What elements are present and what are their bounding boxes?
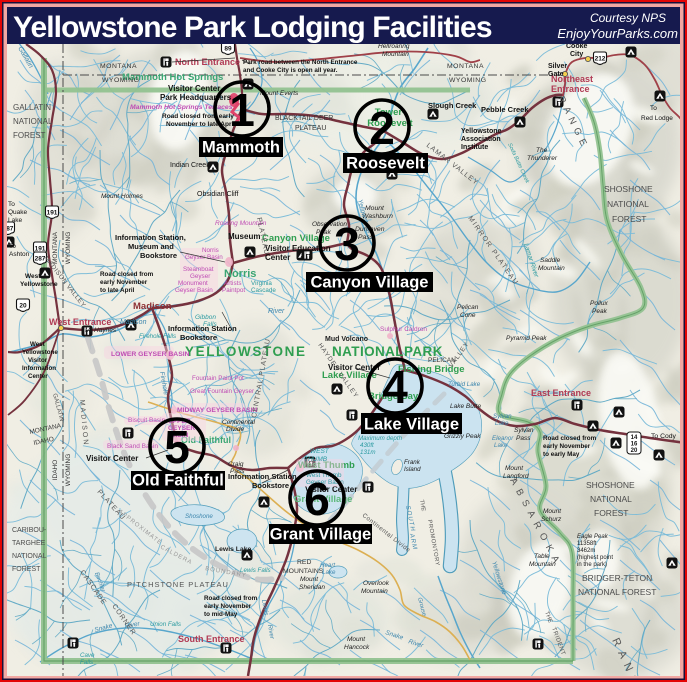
svg-text:Information Station,: Information Station,: [115, 233, 186, 242]
svg-text:Mountain: Mountain: [361, 588, 388, 595]
svg-text:Continental: Continental: [222, 419, 255, 426]
svg-text:Geyser Basin: Geyser Basin: [175, 287, 213, 294]
svg-text:WEST: WEST: [310, 448, 330, 455]
svg-text:WYOMING: WYOMING: [102, 77, 139, 84]
svg-text:East Entrance: East Entrance: [531, 388, 591, 398]
svg-text:To: To: [9, 243, 16, 250]
svg-text:to early May: to early May: [543, 451, 580, 458]
svg-text:Visitor Center: Visitor Center: [86, 454, 138, 463]
svg-text:20: 20: [631, 448, 638, 454]
svg-text:Center: Center: [28, 373, 48, 380]
svg-text:Hancock: Hancock: [344, 644, 370, 651]
svg-text:City: City: [570, 51, 583, 58]
svg-text:Sylvan: Sylvan: [514, 427, 534, 434]
svg-text:Lake Butte: Lake Butte: [450, 403, 481, 410]
svg-text:Thunderer: Thunderer: [527, 155, 558, 162]
svg-text:MONTANA: MONTANA: [52, 231, 59, 264]
svg-text:WYOMING: WYOMING: [65, 454, 72, 487]
svg-text:212: 212: [595, 55, 606, 62]
svg-text:Norris: Norris: [202, 247, 219, 254]
svg-text:Saddle: Saddle: [540, 257, 561, 264]
svg-text:Madison: Madison: [133, 301, 172, 312]
svg-text:Cave: Cave: [80, 652, 95, 659]
svg-text:to mid-May: to mid-May: [204, 611, 238, 618]
svg-text:IDAHO: IDAHO: [52, 460, 59, 481]
svg-text:5: 5: [164, 421, 190, 473]
svg-text:Mt Haynes: Mt Haynes: [85, 327, 117, 334]
svg-text:Road closed from: Road closed from: [543, 435, 597, 442]
svg-text:Sheridan: Sheridan: [299, 584, 325, 591]
svg-text:To: To: [8, 201, 15, 208]
svg-text:PLATEAU: PLATEAU: [295, 125, 326, 132]
svg-text:Pebble Creek: Pebble Creek: [481, 105, 529, 114]
svg-text:TARGHEE: TARGHEE: [12, 540, 46, 547]
svg-text:Museum and: Museum and: [128, 242, 174, 251]
svg-text:early November: early November: [100, 279, 148, 286]
svg-text:3462m: 3462m: [577, 548, 595, 554]
svg-text:West: West: [25, 273, 41, 280]
svg-text:early November: early November: [543, 443, 591, 450]
svg-text:Shoshone: Shoshone: [185, 513, 213, 520]
svg-text:NATIONAL: NATIONAL: [12, 553, 47, 560]
svg-text:Madison: Madison: [120, 319, 147, 326]
svg-text:MOUNTAINS: MOUNTAINS: [283, 568, 324, 575]
svg-text:Mud Volcano: Mud Volcano: [325, 336, 368, 343]
svg-text:Lake: Lake: [8, 217, 22, 224]
svg-text:Grizzly Peak: Grizzly Peak: [444, 433, 481, 440]
svg-text:430ft: 430ft: [360, 442, 374, 449]
svg-text:(highest point: (highest point: [577, 555, 613, 561]
svg-text:NATIONAL: NATIONAL: [13, 117, 53, 126]
svg-text:Divide: Divide: [226, 426, 244, 433]
svg-text:FOREST: FOREST: [594, 508, 628, 518]
svg-text:Gibbon: Gibbon: [195, 314, 216, 321]
svg-text:Frank: Frank: [404, 459, 421, 466]
svg-text:Falls: Falls: [80, 659, 93, 666]
svg-text:Monument: Monument: [178, 280, 208, 287]
svg-text:Grant Village: Grant Village: [270, 526, 371, 544]
svg-text:1: 1: [229, 84, 255, 136]
svg-text:191: 191: [35, 245, 46, 252]
svg-text:4: 4: [382, 361, 408, 413]
svg-text:South Entrance: South Entrance: [178, 634, 245, 644]
svg-text:THUMB: THUMB: [304, 456, 328, 463]
svg-text:Obsidian Cliff: Obsidian Cliff: [197, 191, 239, 198]
svg-text:BLACKTAIL DEER: BLACKTAIL DEER: [275, 115, 333, 122]
svg-text:Virginia: Virginia: [251, 280, 272, 287]
svg-text:Information: Information: [22, 365, 56, 372]
svg-text:3: 3: [334, 218, 360, 270]
svg-text:Museum: Museum: [228, 232, 260, 241]
svg-text:Mammoth: Mammoth: [202, 139, 280, 157]
svg-text:WYOMING: WYOMING: [65, 232, 72, 265]
svg-text:Peak: Peak: [592, 308, 608, 315]
svg-text:Yellowstone: Yellowstone: [461, 128, 502, 135]
svg-text:Mount: Mount: [300, 576, 319, 583]
svg-text:Yellowstone: Yellowstone: [20, 281, 58, 288]
svg-text:GALLATIN: GALLATIN: [13, 103, 51, 112]
svg-text:Road closed from: Road closed from: [100, 271, 154, 278]
svg-text:MONTANA: MONTANA: [447, 63, 484, 70]
svg-text:Mountain: Mountain: [538, 265, 565, 272]
svg-text:PITCHSTONE PLATEAU: PITCHSTONE PLATEAU: [127, 580, 229, 589]
svg-text:Firehole Falls: Firehole Falls: [139, 333, 176, 340]
svg-text:Courtesy NPS: Courtesy NPS: [590, 11, 666, 25]
svg-text:Lake: Lake: [322, 569, 336, 576]
svg-text:West: West: [30, 341, 45, 348]
svg-text:Cascade: Cascade: [251, 287, 276, 294]
svg-text:early November: early November: [204, 603, 252, 610]
svg-text:MIDWAY GEYSER BASIN: MIDWAY GEYSER BASIN: [177, 407, 258, 414]
svg-text:Institute: Institute: [461, 144, 488, 151]
svg-text:To: To: [650, 105, 657, 112]
svg-text:Pyramid Peak: Pyramid Peak: [506, 335, 547, 342]
svg-text:Entrance: Entrance: [551, 84, 590, 94]
svg-text:BRIDGER-TETON: BRIDGER-TETON: [582, 573, 652, 583]
svg-text:Sulphur Caldron: Sulphur Caldron: [380, 326, 427, 333]
svg-text:Mount: Mount: [543, 508, 562, 515]
svg-text:Canyon Village: Canyon Village: [311, 274, 429, 292]
svg-text:Visitor Center: Visitor Center: [168, 84, 220, 93]
svg-text:Mount Holmes: Mount Holmes: [101, 193, 144, 200]
svg-text:West Entrance: West Entrance: [49, 317, 111, 327]
svg-text:Indian Creek: Indian Creek: [170, 162, 210, 169]
svg-text:Mount: Mount: [505, 465, 524, 472]
svg-text:Pelican: Pelican: [457, 304, 479, 311]
svg-text:Lake: Lake: [495, 420, 509, 427]
svg-text:Craig: Craig: [228, 461, 244, 468]
svg-text:16: 16: [631, 442, 638, 448]
svg-text:Hellroaring: Hellroaring: [378, 43, 410, 50]
svg-text:Ashton: Ashton: [9, 251, 30, 258]
svg-text:EnjoyYourParks.com: EnjoyYourParks.com: [557, 26, 678, 41]
svg-text:Steamboat: Steamboat: [183, 266, 214, 273]
svg-text:Pass: Pass: [230, 468, 245, 475]
svg-text:Island: Island: [404, 466, 421, 473]
svg-text:FOREST: FOREST: [13, 131, 46, 140]
svg-text:6: 6: [304, 473, 330, 525]
svg-text:NATIONAL: NATIONAL: [332, 344, 404, 359]
svg-text:RED: RED: [297, 559, 311, 566]
svg-text:Artists: Artists: [224, 280, 242, 287]
svg-text:Eleanor: Eleanor: [492, 435, 514, 442]
svg-text:WYOMING: WYOMING: [449, 77, 486, 84]
svg-text:14: 14: [631, 435, 638, 441]
svg-text:Maximum depth: Maximum depth: [358, 435, 403, 442]
svg-text:Mountain: Mountain: [382, 51, 409, 58]
svg-text:Lewis Lake: Lewis Lake: [215, 546, 251, 553]
svg-text:89: 89: [224, 45, 232, 52]
svg-text:Turbid Lake: Turbid Lake: [448, 381, 481, 388]
svg-text:Bookstore: Bookstore: [140, 251, 177, 260]
svg-text:Cone: Cone: [460, 312, 476, 319]
svg-text:in the park): in the park): [577, 562, 607, 568]
svg-text:Bookstore: Bookstore: [252, 481, 289, 490]
svg-text:Geyser: Geyser: [190, 273, 210, 280]
svg-text:Slough Creek: Slough Creek: [428, 101, 477, 110]
svg-text:SHOSHONE: SHOSHONE: [604, 184, 653, 194]
svg-text:Silver: Silver: [548, 63, 567, 70]
svg-text:Gate: Gate: [548, 71, 564, 78]
svg-text:11358ft: 11358ft: [577, 541, 597, 547]
svg-text:NATIONAL FOREST: NATIONAL FOREST: [578, 587, 656, 597]
svg-text:Association: Association: [461, 136, 501, 143]
svg-text:Eagle Peak: Eagle Peak: [577, 534, 609, 540]
svg-text:Mount: Mount: [347, 636, 366, 643]
svg-text:Yellowstone Park Lodging Facil: Yellowstone Park Lodging Facilities: [13, 11, 492, 44]
svg-text:Yellowstone: Yellowstone: [22, 349, 58, 356]
svg-text:CARIBOU-: CARIBOU-: [12, 527, 47, 534]
svg-text:NATIONAL: NATIONAL: [590, 494, 632, 504]
svg-text:The: The: [536, 147, 548, 154]
svg-text:River: River: [268, 308, 285, 315]
svg-text:LOWER GEYSER BASIN: LOWER GEYSER BASIN: [111, 351, 190, 358]
svg-text:To Cody: To Cody: [651, 433, 677, 440]
svg-text:Old Faithful: Old Faithful: [132, 472, 224, 490]
svg-text:Overlook: Overlook: [363, 580, 390, 587]
svg-text:Sylvan: Sylvan: [493, 413, 512, 420]
svg-text:MONTANA: MONTANA: [100, 63, 137, 70]
svg-text:Quake: Quake: [8, 209, 28, 216]
svg-text:Great Fountain Geyser: Great Fountain Geyser: [190, 388, 254, 395]
svg-text:Heart: Heart: [320, 562, 335, 569]
svg-text:Pass: Pass: [516, 435, 531, 442]
svg-text:NATIONAL: NATIONAL: [607, 199, 649, 209]
svg-text:191: 191: [47, 209, 58, 216]
svg-text:20: 20: [19, 302, 27, 309]
svg-text:Mount: Mount: [365, 205, 385, 212]
svg-text:Lake Village: Lake Village: [364, 416, 459, 434]
svg-text:and Cooke City is open all yea: and Cooke City is open all year.: [243, 67, 338, 74]
svg-text:Paintpot: Paintpot: [222, 287, 245, 294]
svg-text:Visitor: Visitor: [28, 357, 48, 364]
svg-text:Cooke: Cooke: [566, 43, 588, 50]
svg-text:Union Falls: Union Falls: [150, 621, 181, 628]
svg-text:YELLOWSTONE: YELLOWSTONE: [185, 344, 307, 359]
svg-text:2: 2: [369, 102, 395, 154]
svg-text:Norris: Norris: [224, 268, 256, 280]
svg-text:FOREST: FOREST: [12, 566, 41, 573]
svg-text:Road closed from early: Road closed from early: [162, 113, 234, 120]
svg-text:November to late April: November to late April: [166, 121, 235, 128]
svg-text:to late April: to late April: [100, 287, 135, 294]
svg-text:SHOSHONE: SHOSHONE: [586, 480, 635, 490]
svg-text:Red Lodge: Red Lodge: [641, 115, 673, 122]
svg-text:131m: 131m: [360, 449, 375, 456]
svg-text:Park road between the North En: Park road between the North Entrance: [243, 59, 358, 66]
svg-text:Bookstore: Bookstore: [180, 333, 217, 342]
svg-text:FOREST: FOREST: [612, 214, 646, 224]
svg-text:Falls: Falls: [203, 321, 217, 328]
svg-text:Roosevelt: Roosevelt: [346, 155, 425, 173]
svg-text:Fountain Paint Pot: Fountain Paint Pot: [192, 375, 244, 382]
svg-text:Schurz: Schurz: [541, 516, 562, 523]
svg-text:Road closed from: Road closed from: [204, 595, 258, 602]
svg-text:Lake: Lake: [494, 442, 508, 449]
svg-text:Pollux: Pollux: [590, 300, 608, 307]
svg-text:Mammoth Hot Springs Terraces: Mammoth Hot Springs Terraces: [130, 104, 233, 111]
